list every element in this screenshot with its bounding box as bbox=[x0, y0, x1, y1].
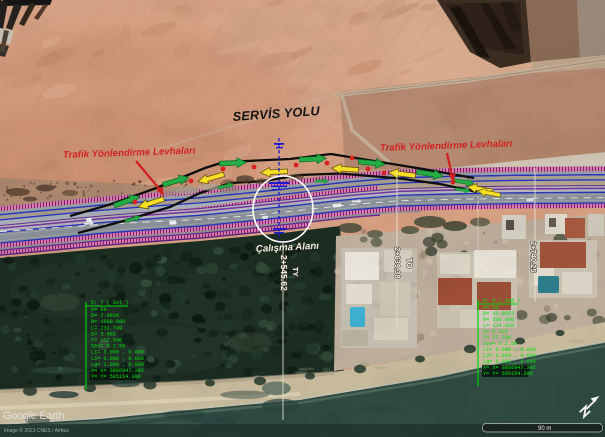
svg-text:V= 50: V= 50 bbox=[91, 307, 107, 313]
svg-text:S= 3.002: S= 3.002 bbox=[91, 331, 116, 337]
svg-text:Lg= 1.000 , 0.000: Lg= 1.000 , 0.000 bbox=[91, 362, 144, 368]
svg-text:L= 231.749: L= 231.749 bbox=[91, 325, 122, 331]
svg-text:T= 112.048: T= 112.048 bbox=[91, 338, 122, 344]
svg-text:90 m: 90 m bbox=[538, 426, 551, 432]
svg-text:TO: TO bbox=[405, 258, 414, 268]
svg-text:5: 7 ( Sol ): 5: 7 ( Sol ) bbox=[91, 300, 128, 306]
svg-text:R= 1000.000: R= 1000.000 bbox=[91, 319, 125, 325]
svg-text:2+545.62: 2+545.62 bbox=[279, 255, 289, 291]
svg-text:TY: TY bbox=[291, 267, 300, 277]
svg-text:L1= 0.000 , 0.000: L1= 0.000 , 0.000 bbox=[91, 350, 144, 356]
svg-text:Image © 2023 CNES / Airbus: Image © 2023 CNES / Airbus bbox=[4, 427, 69, 434]
svg-text:D= 7.8926: D= 7.8926 bbox=[91, 313, 119, 319]
svg-text:Sev= % 2.50: Sev= % 2.50 bbox=[91, 344, 125, 350]
svg-text:Google Earth: Google Earth bbox=[3, 410, 64, 422]
svg-text:X= X= 3866947.392: X= X= 3866947.392 bbox=[91, 368, 144, 374]
svg-text:2+639.38: 2+639.38 bbox=[393, 247, 402, 279]
svg-text:Y= Y= 585154.308: Y= Y= 585154.308 bbox=[483, 371, 533, 377]
svg-text:2+740.25: 2+740.25 bbox=[529, 241, 538, 273]
svg-text:L2= 0.000 , 0.000: L2= 0.000 , 0.000 bbox=[91, 356, 144, 362]
svg-text:5: 8 ( Sağ ): 5: 8 ( Sağ ) bbox=[483, 298, 520, 304]
svg-text:Y= Y= 585154.308: Y= Y= 585154.308 bbox=[91, 374, 141, 380]
